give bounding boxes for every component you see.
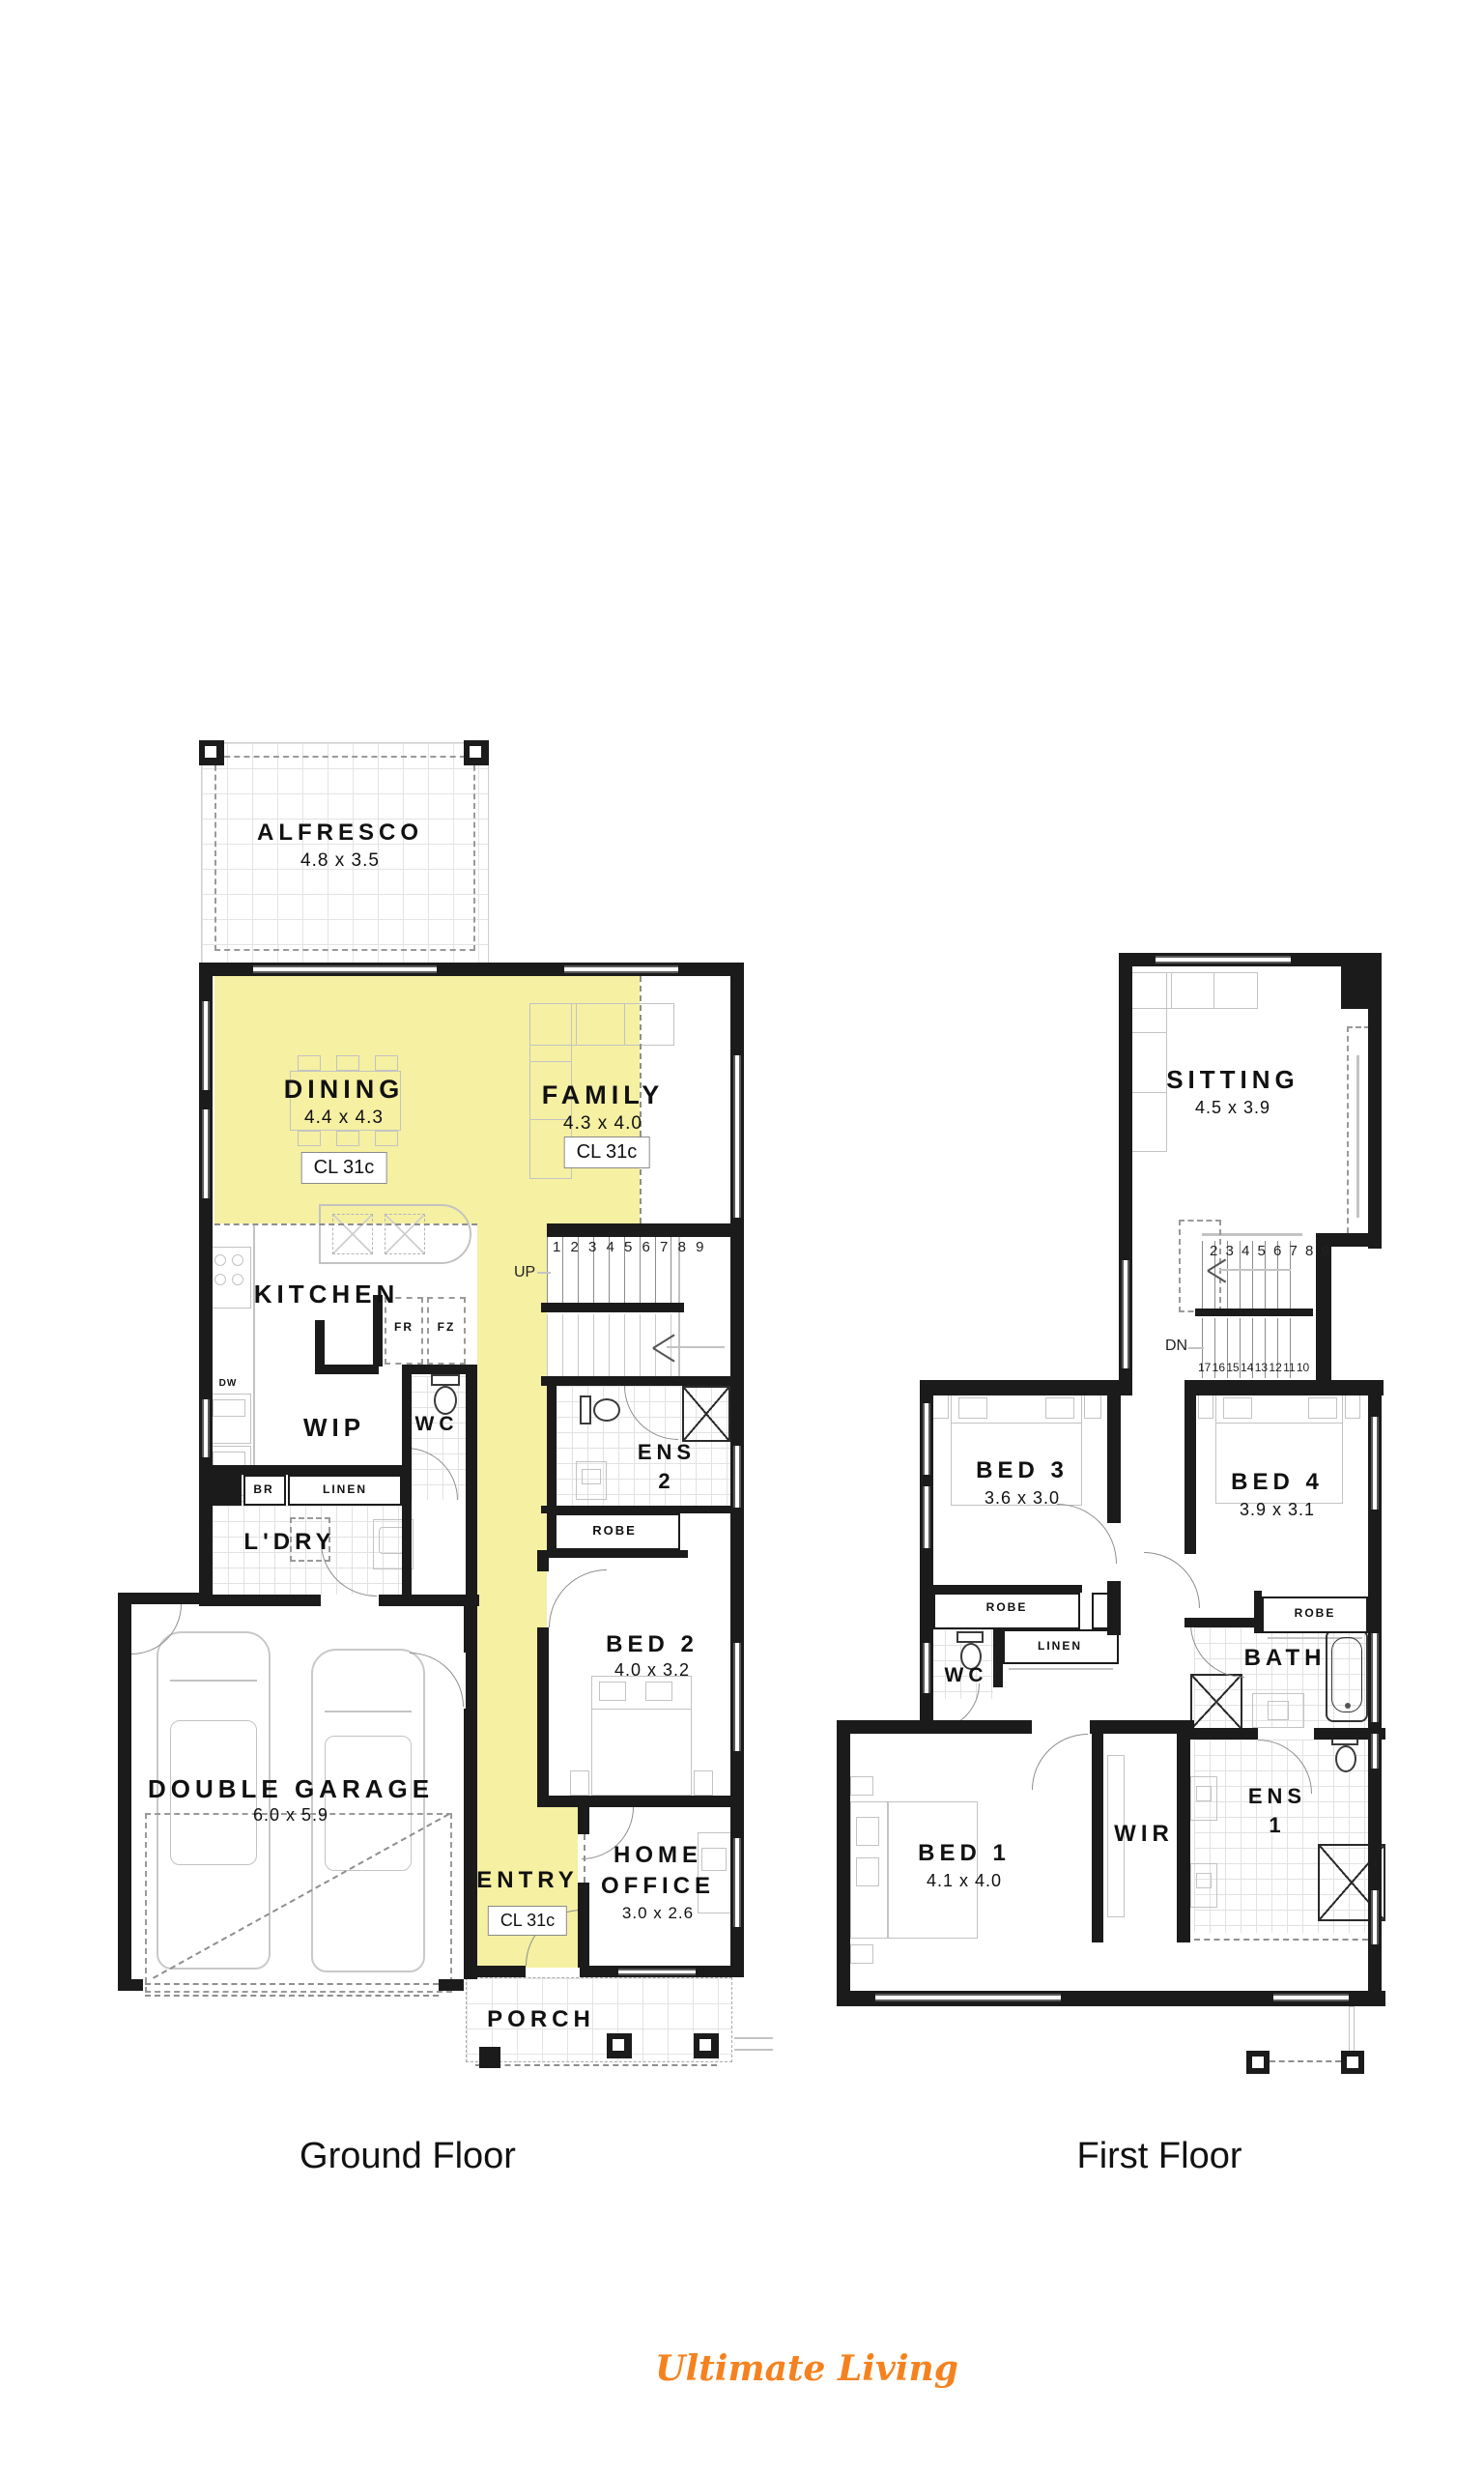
door-arc [410,1653,464,1707]
wall-segment [315,1365,379,1374]
window [202,1399,210,1457]
window [1371,1734,1379,1769]
window [875,1994,1061,2001]
wall-segment [402,1365,412,1457]
furniture-outline [1345,1394,1360,1419]
room-label-bed1: BED 1 [918,1840,1011,1867]
wall-segment [1184,1380,1384,1395]
detail-line [537,1272,551,1274]
dashed-line [1270,2060,1341,2062]
post-core [1252,2057,1264,2068]
window [1156,956,1291,964]
wall-segment [1195,1309,1313,1316]
furniture-outline [1196,1873,1212,1888]
stair-numbers-ff-down: 17 16 15 14 13 12 11 10 [1198,1361,1309,1374]
furniture-outline [207,1247,251,1309]
room-label-bed3: BED 3 [976,1457,1069,1484]
dim-bed1: 4.1 x 4.0 [927,1871,1002,1891]
furniture-outline [1308,1397,1337,1419]
label-robe-bed4: ROBE [1295,1606,1336,1620]
wall-segment [402,1457,412,1595]
dashed-line [145,1995,439,1997]
toilet-bowl [434,1386,457,1415]
wall-segment [464,1709,477,1979]
door-arc [1032,1734,1088,1790]
room-label-entry: ENTRY [476,1867,578,1894]
wall-segment [1184,1380,1196,1554]
room-label-wir: WIR [1114,1821,1174,1848]
furniture-outline [1130,972,1167,1152]
wall-segment [578,1796,589,1834]
furniture-outline [856,1817,879,1846]
dim-dining: 4.4 x 4.3 [304,1108,384,1129]
wall-segment [199,1595,321,1606]
wall-segment [1092,1734,1103,1942]
detail-line [576,1003,577,1046]
shower-box [1190,1674,1242,1730]
detail-line [951,1423,1082,1424]
window [1371,1890,1379,1944]
brand-logo: Ultimate Living [655,2348,958,2389]
detail-line [734,2049,773,2051]
window [1122,1260,1129,1368]
detail-line [734,2037,773,2039]
wall-segment [1341,966,1368,1009]
island-cross [385,1214,425,1254]
label-robe-bed2: ROBE [592,1523,637,1538]
furniture-outline [232,1274,243,1285]
wall-segment [547,1376,556,1556]
wall-segment [837,1720,1032,1734]
dim-sitting: 4.5 x 3.9 [1195,1098,1270,1118]
shower-box [682,1386,730,1442]
detail-line [1130,1092,1167,1093]
label-broom: BR [253,1482,273,1496]
room-label-ens2-line2: 2 [658,1469,674,1494]
furniture-outline [694,1770,713,1796]
ceiling-label-entry: CL 31c [488,1906,567,1936]
furniture-outline [1045,1397,1074,1419]
detail-line [1171,972,1172,1009]
stair-numbers-ff-up: 2 3 4 5 6 7 8 9 [1210,1243,1329,1259]
room-label-dining: DINING [284,1075,405,1105]
room-label-ens1-line2: 1 [1269,1813,1285,1838]
window [733,1055,741,1218]
window [618,1969,696,1975]
detail-line [170,1680,257,1682]
detail-line [1213,972,1214,1009]
room-label-home-office-line2: OFFICE [601,1873,715,1900]
furniture-outline [1198,1394,1213,1419]
detail-line [1219,1269,1291,1271]
furniture-outline [701,1848,727,1871]
room-label-wc-ff: WC [945,1664,988,1687]
room-label-bed4: BED 4 [1231,1469,1324,1496]
label-fridge: FR [394,1320,414,1334]
post-core [1347,2057,1358,2068]
window [253,965,437,973]
caption-first-floor: First Floor [1077,2136,1242,2177]
wall-segment [680,1506,740,1513]
detail-line [1009,1668,1113,1670]
wall-segment [1184,1728,1258,1740]
wall-segment [541,1506,686,1513]
wall-segment [1107,1581,1121,1635]
toilet-tank [580,1395,591,1424]
wall-segment [439,1979,464,1991]
wall-segment [118,1593,131,1991]
furniture-outline [850,1776,873,1796]
furniture-outline [375,1055,398,1071]
wall-segment [547,1223,730,1237]
room-label-ens2-line1: ENS [638,1440,696,1465]
room-label-bed2: BED 2 [606,1631,699,1658]
post-core [205,746,216,758]
furniture-outline [232,1254,243,1266]
post-core [470,746,481,758]
window [923,1486,930,1548]
room-label-ens1-line1: ENS [1248,1784,1306,1809]
detail-line [1130,1032,1167,1033]
window [202,1109,210,1198]
furniture-outline [336,1131,359,1146]
room-label-home-office-line1: HOME [614,1842,702,1869]
window [733,1446,741,1508]
wall-segment [1368,953,1382,1249]
dashed-line [584,1834,585,1883]
room-label-ldry: L'DRY [243,1529,335,1556]
room-label-garage: DOUBLE GARAGE [148,1774,434,1804]
stair-treads-dashed [547,1314,678,1380]
dim-bed3: 3.6 x 3.0 [985,1488,1060,1509]
label-dishwasher: DW [219,1378,238,1389]
wall-segment [199,1465,242,1506]
window [923,1643,930,1693]
furniture-outline [1349,2006,1355,2053]
detail-line [253,1223,255,1465]
room-label-alfresco: ALFRESCO [257,820,423,847]
label-stairs-dn: DN [1165,1338,1187,1355]
furniture-outline [213,1399,245,1417]
toilet-tank [431,1374,460,1386]
wall-segment [920,1380,1132,1395]
window [923,1403,930,1475]
toilet-tank [956,1631,984,1643]
wall-segment [118,1979,143,1991]
post-core [613,2039,624,2051]
label-freezer: FZ [438,1320,456,1334]
ceiling-label-family: CL 31c [564,1136,650,1168]
floor-plan-canvas: ALFRESCO 4.8 x 3.5 DINING 4.4 x 4.3 CL 3… [0,0,1484,2474]
detail-line [624,1003,625,1046]
furniture-outline [570,1770,589,1796]
label-linen-gf: LINEN [323,1482,367,1496]
furniture-outline [336,1055,359,1071]
furniture-outline [1084,1394,1101,1419]
wall-segment [464,1595,477,1653]
dim-alfresco: 4.8 x 3.5 [300,850,380,872]
furniture-outline [599,1682,626,1701]
stair-numbers-gf: 1 2 3 4 5 6 7 8 9 [553,1239,703,1255]
label-linen-ff: LINEN [1038,1639,1082,1653]
window [733,1643,741,1751]
room-label-family: FAMILY [542,1080,665,1110]
furniture-outline [298,1055,321,1071]
door-arc [549,1569,607,1627]
window [1371,1417,1379,1510]
dashed-outline [145,1813,452,1993]
wall-segment [927,1585,1082,1593]
detail-line [887,1801,889,1939]
detail-line [667,1346,725,1348]
dim-garage: 6.0 x 5.9 [253,1805,328,1826]
room-label-porch: PORCH [487,2006,595,2033]
furniture-outline [1331,1637,1362,1712]
dim-family: 4.3 x 4.0 [563,1113,642,1135]
dashed-line [475,2064,717,2066]
window [564,965,678,973]
furniture-outline [931,1394,949,1419]
caption-ground-floor: Ground Floor [300,2136,516,2177]
furniture-outline [1223,1397,1252,1419]
dim-bed4: 3.9 x 3.1 [1240,1500,1315,1520]
wall-segment [1177,1728,1190,1942]
furniture-outline [214,1274,226,1285]
wall-segment [578,1883,589,1968]
wall-segment [537,1627,549,1798]
ceiling-label-dining: CL 31c [301,1152,387,1184]
room-label-bath: BATH [1244,1645,1327,1672]
label-stairs-up: UP [514,1264,535,1281]
detail-line [325,1711,412,1712]
island-cross [332,1214,373,1254]
furniture-outline [1196,1786,1212,1801]
dashed-line [145,1983,439,1985]
wall-segment [1119,953,1132,1245]
detail-line [1188,1347,1204,1349]
room-label-kitchen: KITCHEN [254,1280,400,1309]
label-robe-bed3: ROBE [986,1600,1028,1614]
wall-segment [537,1796,742,1807]
furniture-outline [1268,1701,1289,1720]
window [202,1001,210,1090]
furniture-outline [582,1469,601,1484]
room-label-sitting: SITTING [1166,1065,1299,1095]
wall-segment [479,2047,500,2068]
furniture-outline [850,1944,873,1964]
dashed-line [1194,1939,1368,1941]
dim-home-office: 3.0 x 2.6 [622,1904,694,1923]
dashed-line [214,1223,477,1225]
wall-segment [993,1629,1003,1687]
detail-line [529,1061,572,1062]
wall-segment [541,1376,740,1386]
wall-segment [541,1303,684,1312]
wall-segment [837,1720,850,2002]
wall-segment [1107,1380,1121,1523]
furniture-outline [375,1131,398,1146]
furniture-outline [298,1131,321,1146]
detail-line [1345,1703,1351,1709]
furniture-outline [214,1254,226,1266]
toilet-bowl [1335,1745,1356,1772]
wall-segment [541,1550,688,1558]
post-core [699,2039,711,2051]
dim-bed2: 4.0 x 3.2 [614,1660,690,1681]
door-arc [1144,1552,1200,1608]
wall-segment [537,1550,549,1571]
furniture-outline [645,1682,672,1701]
detail-line [1215,1423,1343,1424]
room-label-wc: WC [415,1413,459,1436]
furniture-outline [856,1857,879,1886]
furniture-outline [958,1397,987,1419]
window [1371,1633,1379,1722]
toilet-bowl [593,1398,620,1422]
room-label-wip: WIP [303,1413,365,1443]
window [1273,1994,1349,2001]
detail-line [591,1709,692,1710]
detail-line [1356,1055,1359,1218]
window [733,1838,741,1927]
wall-segment [1184,1618,1262,1627]
